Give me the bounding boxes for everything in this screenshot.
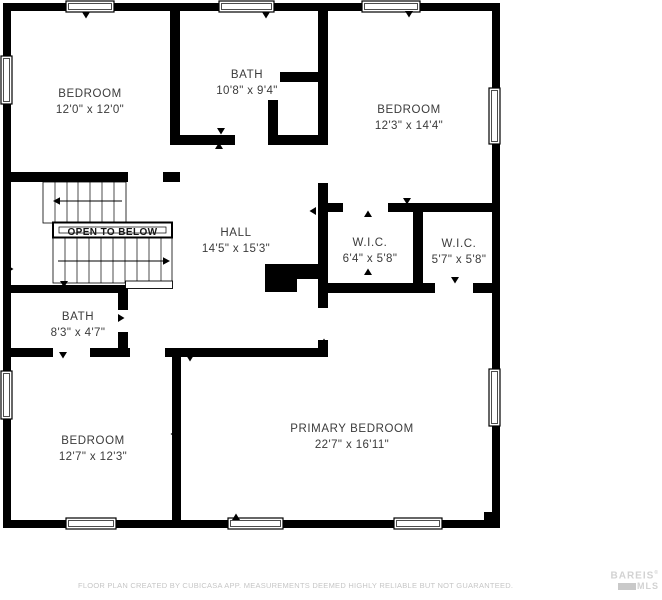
- wall-segment: [3, 348, 53, 357]
- stairs: OPEN TO BELOW: [43, 182, 173, 289]
- window-symbol-inner: [397, 521, 440, 527]
- wall-segment: [3, 285, 123, 293]
- window-symbol-inner: [365, 4, 418, 10]
- floor-plan-page: OPEN TO BELOW BEDROOM12'0" x 12'0"BATH10…: [0, 0, 662, 600]
- room-dimensions: 5'7" x 5'8": [432, 254, 487, 266]
- door-marker-icon: [364, 269, 372, 276]
- wall-segment: [492, 3, 500, 528]
- room-dimensions: 6'4" x 5'8": [343, 253, 398, 265]
- room-dimensions: 12'0" x 12'0": [56, 104, 124, 116]
- room-name: BEDROOM: [58, 88, 122, 100]
- door-marker-icon: [262, 12, 270, 19]
- room-name: BEDROOM: [61, 435, 125, 447]
- wall-segment: [280, 72, 320, 82]
- window-symbol-inner: [492, 372, 498, 424]
- stairs-landing-edge: [126, 281, 173, 289]
- stairs-upper-flight: [43, 182, 126, 223]
- room-dimensions: 12'3" x 14'4": [375, 120, 443, 132]
- wall-segment: [163, 172, 180, 182]
- door-marker-icon: [364, 211, 372, 218]
- wall-segment: [265, 264, 297, 292]
- door-marker-icon: [82, 12, 90, 19]
- room-name: BATH: [62, 311, 94, 323]
- room-dimensions: 22'7" x 16'11": [315, 439, 389, 451]
- window-symbol-inner: [231, 521, 281, 527]
- room-dimensions: 12'7" x 12'3": [59, 451, 127, 463]
- room-name: PRIMARY BEDROOM: [290, 423, 414, 435]
- wall-segment: [388, 203, 492, 212]
- room-name: W.I.C.: [353, 237, 388, 249]
- wall-segment: [170, 3, 180, 145]
- registered-mark-icon: ®: [654, 570, 659, 576]
- wall-segment: [118, 332, 128, 357]
- room-dimensions: 10'8" x 9'4": [216, 85, 277, 97]
- door-marker-icon: [118, 314, 125, 322]
- window-symbol-inner: [4, 59, 10, 102]
- door-marker-icon: [405, 11, 413, 18]
- door-marker-icon: [186, 355, 194, 362]
- wall-segment: [3, 172, 128, 182]
- wall-segment: [297, 264, 320, 279]
- room-name: BATH: [231, 69, 263, 81]
- door-marker-icon: [59, 352, 67, 359]
- room-name: BEDROOM: [377, 104, 441, 116]
- room-dimensions: 8'3" x 4'7": [51, 327, 106, 339]
- window-symbol-inner: [69, 521, 114, 527]
- door-marker-icon: [217, 128, 225, 135]
- wall-segment: [413, 203, 423, 293]
- floor-plan-svg: OPEN TO BELOW BEDROOM12'0" x 12'0"BATH10…: [0, 0, 662, 600]
- wall-segment: [170, 135, 235, 145]
- window-symbol-inner: [222, 4, 272, 10]
- wall-segment: [318, 3, 328, 145]
- window-symbol-inner: [69, 4, 112, 10]
- watermark-mls: MLS: [637, 582, 659, 591]
- room-dimensions: 14'5" x 15'3": [202, 243, 270, 255]
- watermark-brand: BAREIS: [611, 570, 655, 581]
- door-marker-icon: [310, 207, 317, 215]
- wall-segment: [473, 283, 492, 293]
- window-symbol-inner: [492, 91, 498, 142]
- wall-segment: [328, 203, 343, 212]
- wall-segment: [484, 512, 500, 528]
- room-name: W.I.C.: [442, 238, 477, 250]
- room-name: HALL: [220, 227, 251, 239]
- open-to-below-label: OPEN TO BELOW: [67, 227, 157, 238]
- bareis-mls-watermark: BAREIS® MLS: [603, 571, 659, 591]
- door-marker-icon: [232, 514, 240, 521]
- wall-segment: [318, 283, 435, 293]
- wall-segment: [268, 135, 320, 145]
- window-symbol-inner: [4, 374, 10, 417]
- watermark-bar: [618, 583, 636, 590]
- disclaimer-text: FLOOR PLAN CREATED BY CUBICASA APP. MEAS…: [78, 581, 513, 590]
- door-marker-icon: [451, 277, 459, 284]
